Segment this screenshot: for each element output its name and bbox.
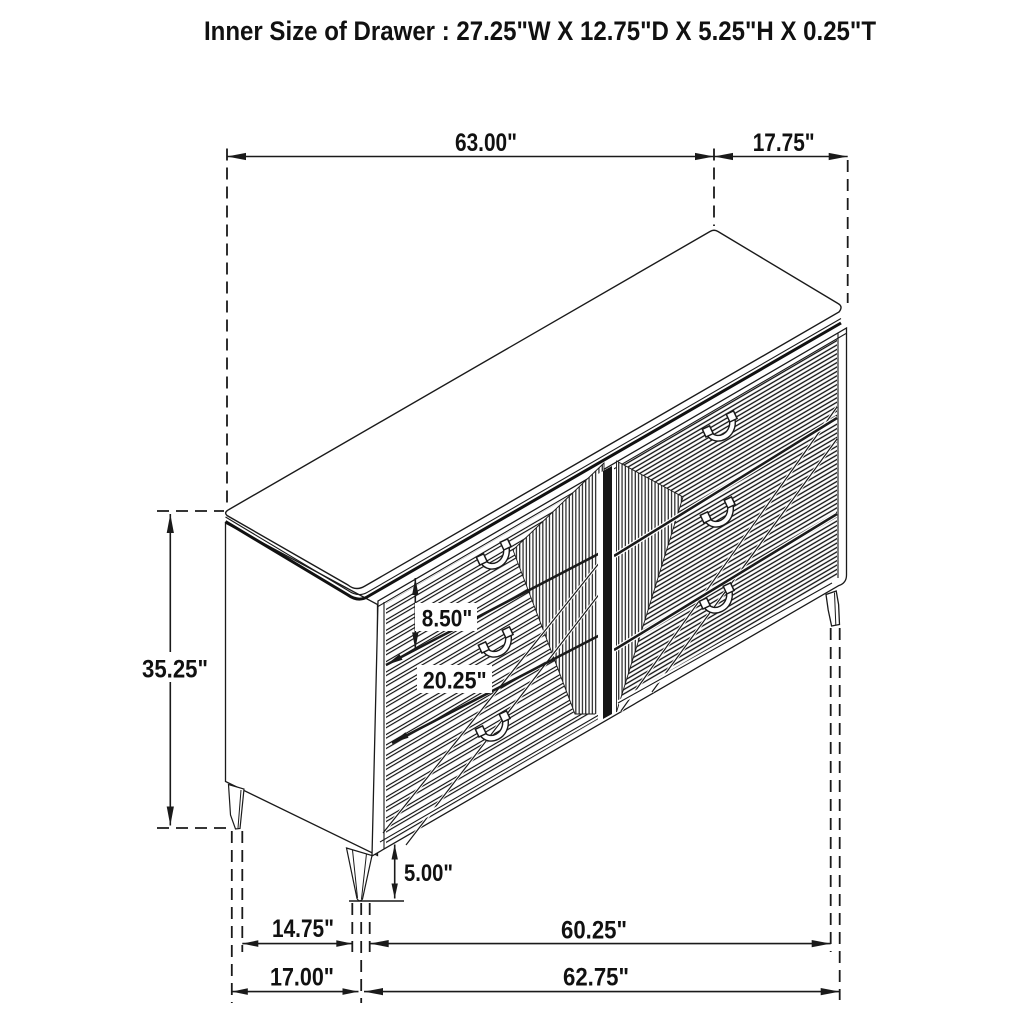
svg-text:60.25": 60.25" xyxy=(561,917,627,945)
svg-text:5.00": 5.00" xyxy=(404,860,453,887)
svg-text:17.00": 17.00" xyxy=(270,964,334,992)
svg-text:Inner Size of Drawer : 27.25"W: Inner Size of Drawer : 27.25"W X 12.75"D… xyxy=(204,16,876,46)
svg-text:62.75": 62.75" xyxy=(563,964,629,992)
svg-text:8.50": 8.50" xyxy=(422,605,472,632)
svg-text:14.75": 14.75" xyxy=(272,915,334,943)
svg-text:17.75": 17.75" xyxy=(753,129,815,157)
svg-text:35.25": 35.25" xyxy=(142,656,208,684)
svg-text:20.25": 20.25" xyxy=(423,667,487,694)
svg-text:63.00": 63.00" xyxy=(455,129,517,157)
